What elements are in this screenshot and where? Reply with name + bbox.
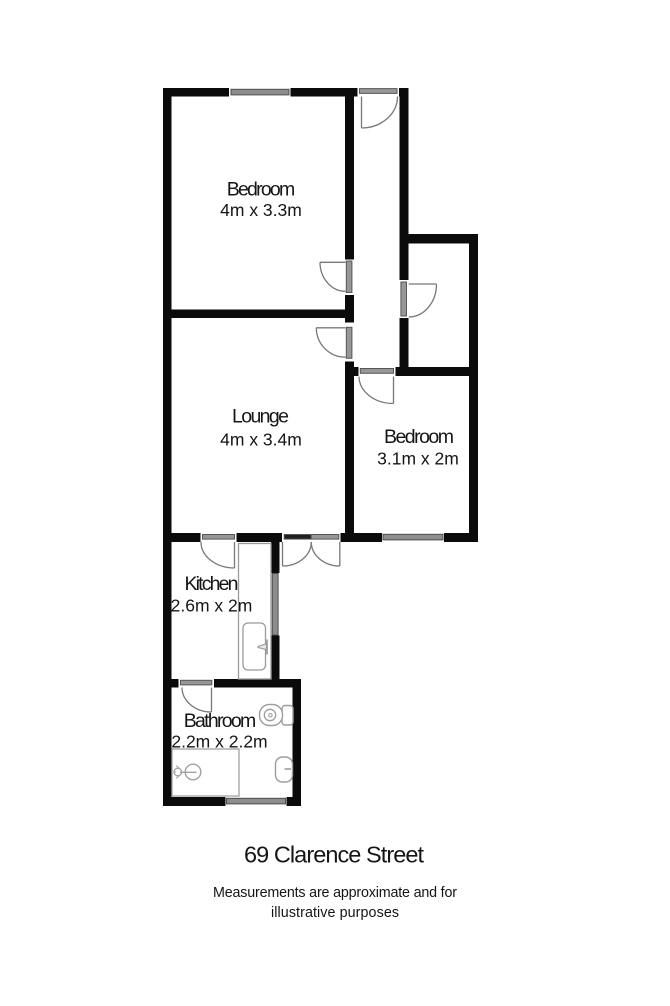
svg-text:3.1m x 2m: 3.1m x 2m [377, 448, 459, 468]
svg-text:Kitchen: Kitchen [185, 573, 239, 595]
svg-text:2.6m x 2m: 2.6m x 2m [171, 596, 253, 616]
svg-text:Bedroom: Bedroom [384, 426, 454, 448]
svg-text:69 Clarence Street: 69 Clarence Street [244, 841, 424, 867]
svg-text:4m x 3.3m: 4m x 3.3m [220, 200, 302, 220]
svg-text:4m x 3.4m: 4m x 3.4m [220, 430, 302, 450]
svg-text:Measurements are approximate a: Measurements are approximate and for [213, 885, 457, 901]
svg-text:Bathroom: Bathroom [184, 710, 257, 732]
svg-text:illustrative purposes: illustrative purposes [271, 905, 399, 921]
svg-text:Bedroom: Bedroom [227, 178, 296, 200]
svg-text:Lounge: Lounge [232, 405, 289, 427]
svg-text:2.2m x 2.2m: 2.2m x 2.2m [171, 732, 267, 752]
